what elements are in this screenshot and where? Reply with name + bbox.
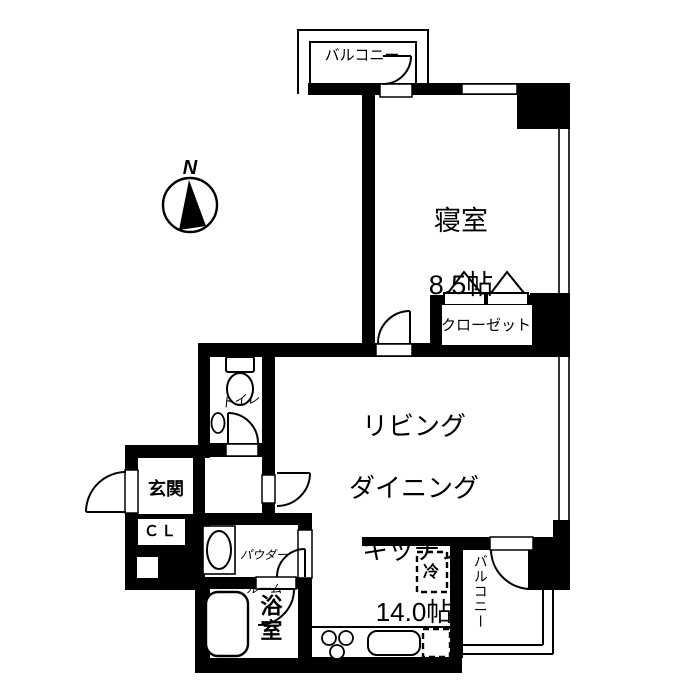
entrance-label: 玄関 (136, 479, 196, 501)
wall-toilet-west (198, 343, 210, 457)
kitchen-counter-end-block (302, 627, 312, 658)
pipe-space-cutout (137, 557, 158, 578)
bedroom-name: 寝室 (380, 205, 542, 237)
wall-south (195, 658, 462, 673)
bedroom-label: 寝室 8.5帖 (380, 173, 542, 333)
shoe-closet-label: ＣＬ (131, 523, 191, 541)
sill-toilet-door (226, 444, 258, 456)
refrigerator-label: 冷 (411, 563, 451, 582)
floor-plan: N バルコニー 寝室 8.5帖 クローゼット リビング ダイニング キッチン 1… (0, 0, 700, 700)
pillar-northeast (517, 83, 570, 129)
door-swing-toilet (228, 413, 258, 443)
door-swing-entrance (86, 472, 126, 512)
sill-hall-ldk-door (262, 475, 275, 503)
window-ldk-east (559, 357, 569, 523)
compass-north-label: N (170, 156, 210, 180)
toilet-tank (226, 357, 254, 372)
ldk-line2: ダイニング (314, 473, 514, 504)
sill-bedroom-north-window (462, 84, 517, 94)
compass-rose (163, 178, 217, 232)
wall-cl-top (135, 514, 185, 519)
balcony-south-label: バルコニー (472, 554, 489, 629)
balcony-north-label: バルコニー (302, 47, 422, 65)
bathroom-label: 浴室 (256, 594, 282, 644)
sill-bedroom-door (376, 344, 412, 356)
sill-balcony-north-door (380, 84, 412, 97)
ldk-line1: リビング (314, 411, 514, 442)
window-bedroom-east (559, 129, 569, 293)
door-swing-hall-ldk (277, 473, 310, 506)
closet-label: クローゼット (426, 317, 546, 335)
powder-line1: パウダー (224, 547, 304, 564)
wall-powder-north (205, 513, 312, 525)
compass-needle (179, 180, 206, 230)
pillar-southeast (528, 545, 570, 590)
wall-bedroom-west (362, 90, 375, 357)
bedroom-size: 8.5帖 (380, 269, 542, 301)
toilet-hand-basin (212, 413, 225, 433)
